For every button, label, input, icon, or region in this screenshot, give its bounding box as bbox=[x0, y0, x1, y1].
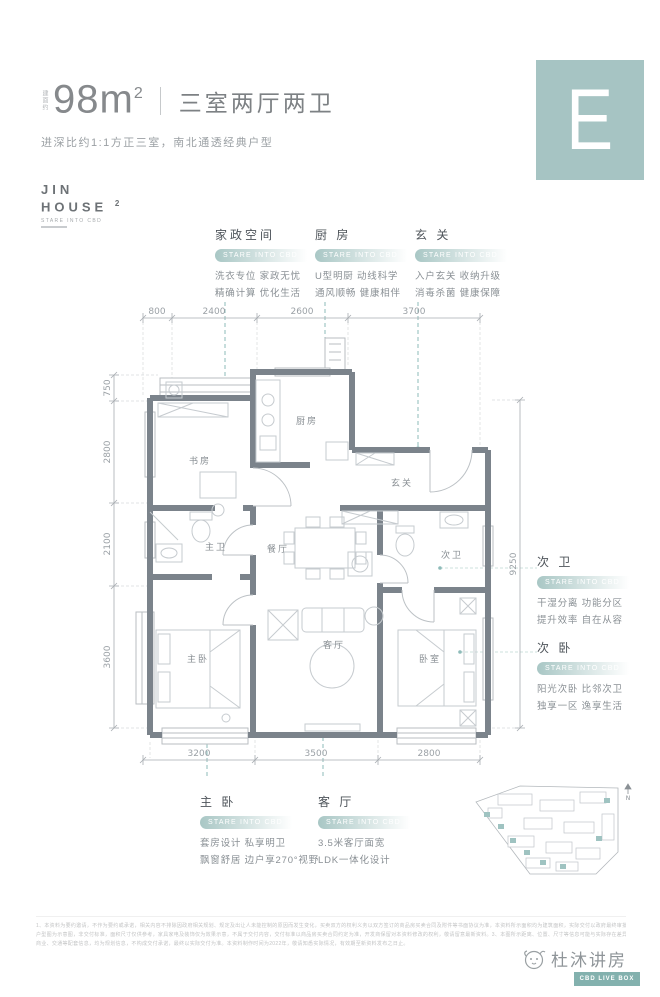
dim-label: 2600 bbox=[291, 307, 314, 317]
annotation-title: 家政空间 bbox=[215, 226, 311, 243]
logo-line2: HOUSE 2 bbox=[41, 197, 123, 214]
north-arrow-icon: N bbox=[625, 784, 631, 802]
annotation-kitchen: 厨 房 STARE INTO CBD U型明厨 动线科学 通风顺畅 健康相伴 bbox=[315, 226, 411, 302]
furniture bbox=[150, 380, 476, 731]
logo-line1: JIN bbox=[41, 183, 123, 197]
dim-label: 3700 bbox=[403, 307, 426, 317]
footer-brand: 杜沐讲房 bbox=[520, 946, 627, 971]
area-sup: 2 bbox=[134, 85, 144, 102]
jin-house-logo: JIN HOUSE 2 STARE INTO CBD bbox=[41, 183, 123, 228]
stare-into-cbd-badge: STARE INTO CBD bbox=[215, 249, 311, 262]
dim-label: 800 bbox=[148, 307, 165, 317]
annotation-living-room: 客 厅 STARE INTO CBD 3.5米客厅面宽 LDK一体化设计 bbox=[318, 793, 414, 869]
annotation-title: 厨 房 bbox=[315, 226, 411, 243]
logo-line2-text: HOUSE bbox=[41, 199, 107, 214]
area-prefix-label: 建面约 bbox=[40, 90, 49, 111]
north-label: N bbox=[626, 795, 631, 802]
walls bbox=[150, 372, 488, 735]
stare-into-cbd-badge: STARE INTO CBD bbox=[318, 816, 414, 829]
room-label-study: 书房 bbox=[189, 455, 211, 467]
room-label-bedroom: 卧室 bbox=[419, 653, 441, 665]
annotation-housekeeping: 家政空间 STARE INTO CBD 洗衣专位 家政无忧 精确计算 优化生活 bbox=[215, 226, 311, 302]
annotation-desc: 套房设计 私享明卫 bbox=[200, 836, 319, 853]
dim-label: 9250 bbox=[509, 552, 519, 575]
dim-label: 2800 bbox=[418, 749, 441, 759]
stare-into-cbd-badge: STARE INTO CBD bbox=[200, 816, 296, 829]
logo-tagline: STARE INTO CBD bbox=[41, 218, 123, 224]
page-subtitle: 进深比约1:1方正三室，南北通透经典户型 bbox=[41, 134, 273, 150]
room-label-living: 客厅 bbox=[323, 639, 345, 651]
header-divider bbox=[160, 87, 161, 115]
logo-sup: 2 bbox=[115, 199, 123, 208]
brand-bar: CBD LIVE BOX bbox=[574, 972, 640, 986]
annotation-desc: U型明厨 动线科学 bbox=[315, 269, 411, 286]
dim-label: 2400 bbox=[203, 307, 226, 317]
annotation-desc: 洗衣专位 家政无忧 bbox=[215, 269, 311, 286]
room-label-entry: 玄关 bbox=[391, 477, 413, 489]
mascot-face-icon bbox=[520, 948, 546, 970]
stare-into-cbd-badge: STARE INTO CBD bbox=[415, 249, 511, 262]
brand-name: 杜沐讲房 bbox=[551, 946, 627, 971]
room-label-dining: 餐厅 bbox=[267, 543, 289, 555]
unit-letter-tile: E bbox=[536, 60, 644, 180]
annotation-desc: LDK一体化设计 bbox=[318, 853, 414, 870]
area-number: 98m bbox=[53, 77, 134, 121]
disclaimer-line: 1、本资料为要约邀请，不作为要约或承诺，相关内容不排除因政府相关规划、规定及出让… bbox=[36, 922, 626, 931]
dim-label: 2100 bbox=[103, 532, 113, 555]
dim-label: 2800 bbox=[103, 440, 113, 463]
annotation-title: 主 卧 bbox=[200, 793, 319, 810]
site-buildings bbox=[488, 792, 614, 871]
annotation-title: 客 厅 bbox=[318, 793, 414, 810]
annotation-desc: 飘窗舒居 边户享270°视野 bbox=[200, 853, 319, 870]
room-label-master-bed: 主卧 bbox=[187, 653, 209, 665]
unit-letter: E bbox=[566, 77, 613, 163]
annotation-desc: 3.5米客厅面宽 bbox=[318, 836, 414, 853]
disclaimer: 1、本资料为要约邀请，不作为要约或承诺，相关内容不排除因政府相关规划、规定及出让… bbox=[36, 916, 626, 949]
flyer-page: 建面约 98m2 三室两厅两卫 进深比约1:1方正三室，南北通透经典户型 E J… bbox=[0, 0, 660, 997]
disclaimer-line: 户型图为示意图，非交付标准，面积尺寸仅供参考，家具家电及装饰仅为效果示意，不属于… bbox=[36, 931, 626, 940]
room-label-kitchen: 厨房 bbox=[296, 415, 318, 427]
stare-into-cbd-badge: STARE INTO CBD bbox=[315, 249, 411, 262]
dim-label: 750 bbox=[103, 379, 113, 396]
dim-label: 3200 bbox=[188, 749, 211, 759]
dim-label: 3500 bbox=[305, 749, 328, 759]
annotation-entry: 玄 关 STARE INTO CBD 入户玄关 收纳升级 消毒杀菌 健康保障 bbox=[415, 226, 511, 302]
annotation-master-bedroom: 主 卧 STARE INTO CBD 套房设计 私享明卫 飘窗舒居 边户享270… bbox=[200, 793, 319, 869]
annotation-title: 玄 关 bbox=[415, 226, 511, 243]
room-label-master-bath: 主卫 bbox=[205, 541, 227, 553]
dim-label: 3600 bbox=[103, 645, 113, 668]
page-title: 三室两厅两卫 bbox=[179, 88, 335, 118]
door-arcs bbox=[223, 450, 472, 625]
room-label-second-bath: 次卫 bbox=[441, 549, 463, 561]
area-value: 98m2 bbox=[53, 74, 144, 119]
header: 建面约 98m2 三室两厅两卫 bbox=[40, 74, 335, 119]
annotation-desc: 入户玄关 收纳升级 bbox=[415, 269, 511, 286]
site-plan-svg: N bbox=[468, 778, 636, 900]
logo-rule bbox=[41, 226, 67, 228]
floor-plan-svg: 800 2400 2600 3700 750 2800 2100 3600 32… bbox=[100, 300, 600, 780]
